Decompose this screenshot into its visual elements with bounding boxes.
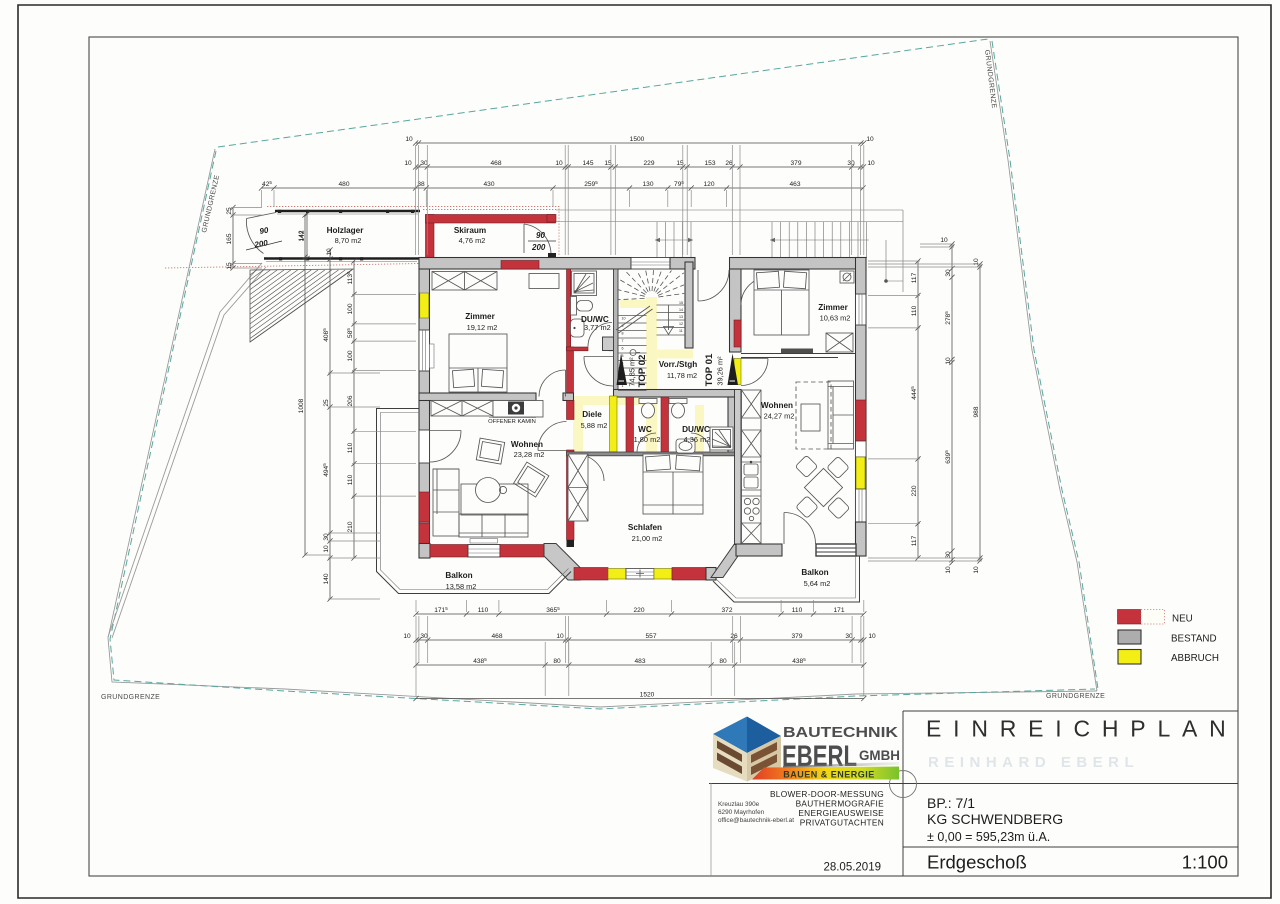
svg-text:Zimmer: Zimmer — [818, 303, 848, 312]
svg-text:TOP 02: TOP 02 — [637, 355, 648, 388]
svg-text:Wohnen: Wohnen — [761, 401, 793, 410]
svg-text:± 0,00 = 595,23m ü.A.: ± 0,00 = 595,23m ü.A. — [927, 830, 1050, 844]
svg-text:10: 10 — [940, 237, 948, 244]
svg-text:10: 10 — [556, 633, 564, 640]
svg-text:13: 13 — [679, 315, 683, 319]
svg-text:8,70 m2: 8,70 m2 — [335, 236, 362, 245]
svg-text:483: 483 — [634, 658, 645, 665]
svg-text:39,26 m²: 39,26 m² — [716, 356, 725, 386]
svg-text:10: 10 — [555, 160, 563, 167]
svg-text:220: 220 — [633, 607, 644, 614]
svg-text:NEU: NEU — [1172, 614, 1193, 625]
svg-text:1008: 1008 — [298, 398, 305, 413]
svg-text:10: 10 — [404, 160, 412, 167]
svg-text:3,77 m2: 3,77 m2 — [584, 323, 611, 332]
svg-text:30: 30 — [420, 633, 428, 640]
svg-text:11,78 m2: 11,78 m2 — [667, 371, 697, 380]
svg-text:DU/WC: DU/WC — [682, 425, 710, 434]
svg-text:10,63 m2: 10,63 m2 — [820, 314, 851, 323]
svg-text:10: 10 — [973, 566, 980, 574]
svg-text:74,85 m²: 74,85 m² — [628, 357, 637, 387]
svg-text:1520: 1520 — [640, 691, 655, 698]
svg-text:120: 120 — [703, 181, 714, 188]
svg-text:Schlafen: Schlafen — [628, 523, 662, 532]
svg-text:80: 80 — [553, 658, 561, 665]
svg-text:10: 10 — [326, 248, 333, 256]
svg-text:110: 110 — [347, 474, 354, 485]
svg-text:30: 30 — [420, 160, 428, 167]
svg-text:Wohnen: Wohnen — [511, 440, 543, 449]
svg-text:5,64 m2: 5,64 m2 — [804, 579, 831, 588]
svg-text:4,76 m2: 4,76 m2 — [459, 236, 486, 245]
svg-text:130: 130 — [642, 181, 653, 188]
svg-text:468: 468 — [490, 160, 501, 167]
svg-text:10: 10 — [403, 633, 411, 640]
svg-text:145: 145 — [582, 160, 593, 167]
svg-text:BESTAND: BESTAND — [1171, 634, 1217, 645]
svg-text:PRIVATGUTACHTEN: PRIVATGUTACHTEN — [800, 818, 884, 828]
svg-text:30: 30 — [847, 160, 855, 167]
svg-text:23,28 m2: 23,28 m2 — [514, 450, 545, 459]
svg-text:OFFENER KAMIN: OFFENER KAMIN — [488, 419, 536, 425]
svg-text:26: 26 — [730, 633, 738, 640]
svg-text:153: 153 — [704, 160, 715, 167]
svg-text:24,27 m2: 24,27 m2 — [764, 412, 795, 421]
svg-text:GRUNDGRENZE: GRUNDGRENZE — [1046, 693, 1105, 700]
svg-text:4,36 m2: 4,36 m2 — [684, 435, 711, 444]
svg-text:1500: 1500 — [630, 136, 645, 143]
svg-text:10: 10 — [973, 258, 980, 266]
svg-text:GRUNDGRENZE: GRUNDGRENZE — [101, 694, 160, 701]
svg-text:BLOWER-DOOR-MESSUNG: BLOWER-DOOR-MESSUNG — [770, 789, 884, 799]
svg-text:Balkon: Balkon — [801, 568, 828, 577]
svg-text:Kreuzlau 390e: Kreuzlau 390e — [718, 801, 760, 808]
svg-text:379: 379 — [790, 160, 801, 167]
svg-text:117: 117 — [911, 272, 918, 283]
svg-text:ABBRUCH: ABBRUCH — [1171, 653, 1219, 664]
svg-text:988: 988 — [973, 406, 980, 417]
svg-text:30: 30 — [945, 269, 952, 277]
svg-text:BAUTHERMOGRAFIE: BAUTHERMOGRAFIE — [796, 799, 885, 809]
svg-text:480: 480 — [338, 181, 349, 188]
svg-text:Skiraum: Skiraum — [454, 226, 486, 235]
svg-text:165: 165 — [226, 233, 233, 244]
svg-text:10: 10 — [866, 136, 874, 143]
svg-text:10: 10 — [945, 357, 952, 365]
svg-text:372: 372 — [721, 607, 732, 614]
svg-text:14: 14 — [679, 308, 683, 312]
svg-text:117: 117 — [911, 535, 918, 546]
svg-text:10: 10 — [868, 633, 876, 640]
svg-text:100: 100 — [347, 303, 354, 314]
svg-text:5: 5 — [622, 354, 624, 358]
svg-text:Zimmer: Zimmer — [465, 312, 495, 321]
svg-text:EINREICHPLAN: EINREICHPLAN — [926, 716, 1238, 742]
svg-text:110: 110 — [347, 442, 354, 453]
svg-text:30: 30 — [323, 533, 330, 541]
svg-text:10: 10 — [867, 160, 875, 167]
svg-text:Erdgeschoß: Erdgeschoß — [927, 852, 1027, 873]
svg-text:21,00 m2: 21,00 m2 — [632, 534, 663, 543]
svg-text:229: 229 — [643, 160, 654, 167]
svg-text:WC: WC — [638, 425, 652, 434]
svg-text:80: 80 — [719, 658, 727, 665]
svg-text:200: 200 — [531, 243, 546, 252]
svg-text:19,12 m2: 19,12 m2 — [467, 323, 498, 332]
svg-text:Holzlager: Holzlager — [327, 226, 365, 235]
svg-text:90: 90 — [536, 231, 545, 240]
svg-text:REINHARD EBERL: REINHARD EBERL — [928, 754, 1139, 771]
svg-text:Diele: Diele — [582, 410, 602, 419]
svg-text:10: 10 — [405, 136, 413, 143]
svg-text:220: 220 — [911, 485, 918, 496]
svg-text:1:100: 1:100 — [1182, 852, 1228, 873]
svg-text:8: 8 — [622, 332, 624, 336]
svg-text:10: 10 — [622, 317, 626, 321]
svg-text:7: 7 — [622, 339, 624, 343]
svg-text:110: 110 — [911, 305, 918, 316]
svg-text:140: 140 — [323, 573, 330, 584]
svg-text:25: 25 — [226, 207, 233, 215]
svg-text:206: 206 — [347, 395, 354, 406]
svg-text:28.05.2019: 28.05.2019 — [823, 862, 881, 874]
svg-text:BP.: 7/1: BP.: 7/1 — [927, 795, 975, 811]
svg-text:6: 6 — [622, 347, 624, 351]
svg-text:Balkon: Balkon — [445, 571, 472, 580]
svg-text:26: 26 — [725, 160, 733, 167]
svg-text:10: 10 — [945, 566, 952, 574]
svg-text:10: 10 — [323, 545, 330, 553]
svg-text:1,80 m2: 1,80 m2 — [634, 435, 661, 444]
svg-text:110: 110 — [478, 607, 489, 614]
svg-text:Vorr./Stgh: Vorr./Stgh — [659, 360, 698, 369]
svg-text:171: 171 — [833, 607, 844, 614]
svg-text:468: 468 — [491, 633, 502, 640]
svg-text:5,88 m2: 5,88 m2 — [581, 421, 608, 430]
svg-text:BAUEN & ENERGIE: BAUEN & ENERGIE — [783, 770, 875, 780]
svg-text:100: 100 — [347, 350, 354, 361]
svg-text:142: 142 — [298, 230, 305, 241]
svg-text:557: 557 — [645, 633, 656, 640]
svg-text:379: 379 — [791, 633, 802, 640]
svg-text:110: 110 — [792, 607, 803, 614]
svg-text:210: 210 — [347, 521, 354, 532]
svg-text:BAUTECHNIK: BAUTECHNIK — [783, 725, 899, 741]
svg-text:25: 25 — [323, 399, 330, 407]
svg-text:TOP 01: TOP 01 — [704, 353, 715, 386]
svg-text:ENERGIEAUSWEISE: ENERGIEAUSWEISE — [798, 808, 884, 818]
svg-text:15: 15 — [679, 301, 683, 305]
svg-text:11: 11 — [679, 329, 683, 333]
svg-text:KG SCHWENDBERG: KG SCHWENDBERG — [927, 811, 1063, 827]
svg-text:430: 430 — [483, 181, 494, 188]
svg-text:office@bautechnik-eberl.at: office@bautechnik-eberl.at — [718, 817, 794, 824]
svg-text:463: 463 — [789, 181, 800, 188]
svg-text:30: 30 — [945, 551, 952, 559]
svg-text:12: 12 — [679, 322, 683, 326]
svg-text:6290 Mayrhofen: 6290 Mayrhofen — [718, 809, 765, 816]
svg-text:GMBH: GMBH — [859, 747, 900, 763]
